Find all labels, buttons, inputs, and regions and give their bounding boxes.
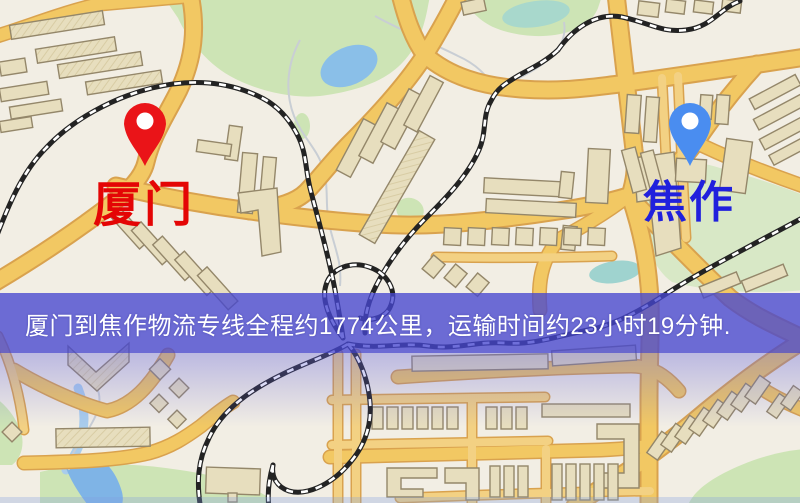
route-info-banner: 厦门到焦作物流专线全程约1774公里，运输时间约23小时19分钟. <box>0 293 800 353</box>
origin-label: 厦门 <box>93 179 195 232</box>
map-screenshot: 厦门 焦作 厦门到焦作物流专线全程约1774公里，运输时间约23小时19分钟. <box>0 0 800 503</box>
map-canvas: 厦门 焦作 <box>0 0 800 503</box>
route-info-text: 厦门到焦作物流专线全程约1774公里，运输时间约23小时19分钟. <box>0 306 731 341</box>
destination-label: 焦作 <box>643 178 735 227</box>
